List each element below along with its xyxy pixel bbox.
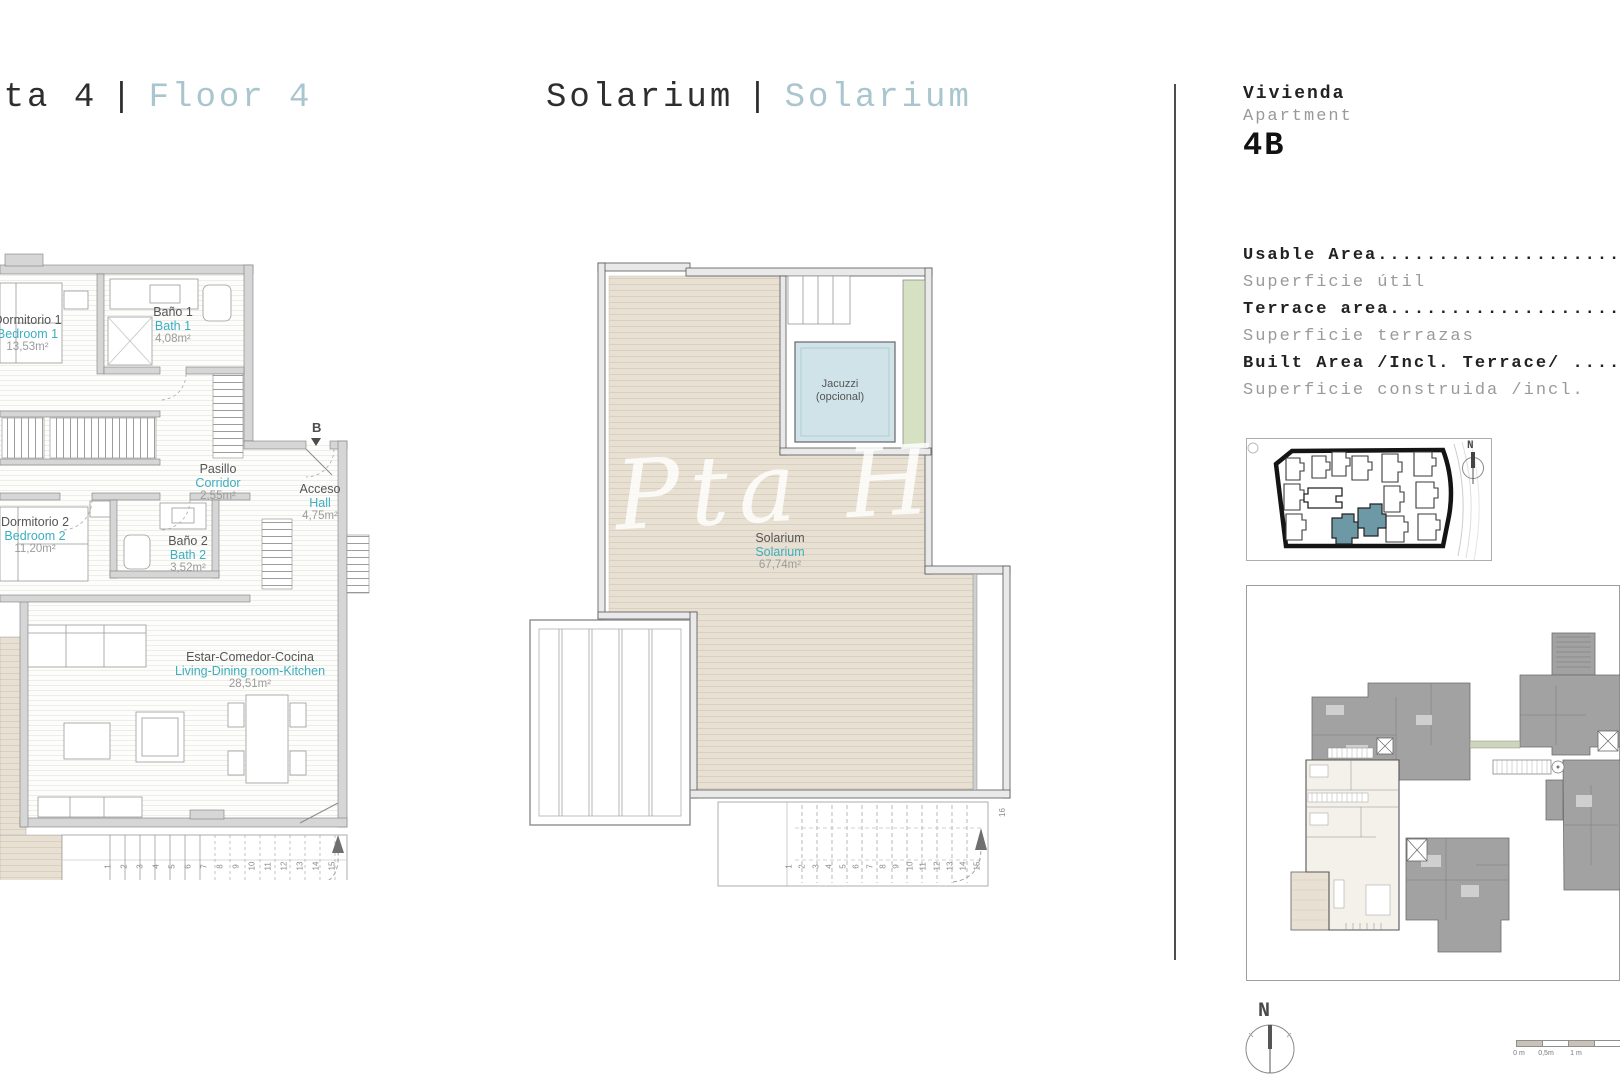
stair-step-number: 4 bbox=[152, 863, 161, 871]
room-label-bath1: Baño 1 Bath 1 4,08m² bbox=[118, 306, 228, 347]
usable-area-row: Usable Area............................ bbox=[1243, 246, 1620, 265]
apartment-label-en: Apartment bbox=[1243, 107, 1353, 126]
stair-step-number: 14 bbox=[959, 863, 968, 871]
terrace-area-row: Terrace area........................... bbox=[1243, 300, 1620, 319]
plan1-title: Planta 4|Floor 4 bbox=[0, 79, 312, 117]
room-name-es: Pasillo bbox=[163, 463, 273, 477]
room-label-living: Estar-Comedor-Cocina Living-Dining room-… bbox=[145, 651, 355, 692]
plan1-title-en: Floor 4 bbox=[149, 79, 313, 117]
plan1-stair-numbers: 123456789101112131415 bbox=[104, 862, 336, 871]
plan2-stair-numbers: 123456789101112131415 bbox=[785, 862, 981, 871]
room-name-en: Bath 1 bbox=[118, 320, 228, 334]
stair-step-number: 1 bbox=[104, 863, 113, 871]
section-marker-b: B bbox=[312, 420, 321, 435]
room-label-solarium: Solarium Solarium 67,74m² bbox=[730, 532, 830, 573]
stair-step-number: 11 bbox=[264, 863, 273, 871]
usable-area-row-es: Superficie útil bbox=[1243, 273, 1426, 292]
scale-label-0: 0 m bbox=[1513, 1050, 1525, 1057]
room-name-es: Dormitorio 2 bbox=[0, 516, 110, 530]
stair-step-number: 13 bbox=[946, 863, 955, 871]
room-name-en: Corridor bbox=[163, 477, 273, 491]
apartment-unit: 4B bbox=[1243, 127, 1285, 164]
scale-segment bbox=[1516, 1040, 1543, 1047]
stair-step-number: 7 bbox=[865, 863, 874, 871]
stair-step-number: 2 bbox=[120, 863, 129, 871]
room-label-hall: Acceso Hall 4,75m² bbox=[270, 483, 370, 524]
room-name-es: Solarium bbox=[730, 532, 830, 546]
jacuzzi-label: Jacuzzi (opcional) bbox=[790, 378, 890, 404]
stair-step-number: 5 bbox=[838, 863, 847, 871]
stair-step-number: 8 bbox=[878, 863, 887, 871]
stair-step-number: 1 bbox=[785, 863, 794, 871]
scale-bar: 0 m 0,5m 1 m bbox=[1516, 1040, 1620, 1062]
room-area: 4,08m² bbox=[118, 333, 228, 347]
stair-step-number: 4 bbox=[825, 863, 834, 871]
jacuzzi-label-line2: (opcional) bbox=[816, 391, 864, 403]
room-label-corridor: Pasillo Corridor 2,55m² bbox=[163, 463, 273, 504]
stair-step-number: 12 bbox=[932, 863, 941, 871]
room-area: 4,75m² bbox=[270, 510, 370, 524]
room-name-en: Living-Dining room-Kitchen bbox=[145, 665, 355, 679]
terrace-area-row-es: Superficie terrazas bbox=[1243, 327, 1475, 346]
stair-step-number: 3 bbox=[811, 863, 820, 871]
compass-north-label: N bbox=[1258, 1000, 1270, 1023]
room-name-en: Bedroom 2 bbox=[0, 530, 110, 544]
stair-step-number: 10 bbox=[248, 863, 257, 871]
scale-label-1: 1 m bbox=[1570, 1050, 1582, 1057]
section-marker-arrow-icon bbox=[311, 438, 321, 446]
plan1-title-es: Planta 4 bbox=[0, 79, 97, 117]
room-area: 3,52m² bbox=[138, 562, 238, 576]
plan2-title: Solarium|Solarium bbox=[546, 79, 972, 117]
built-area-row-es: Superficie construida /incl. bbox=[1243, 381, 1585, 400]
stair-step-number: 12 bbox=[280, 863, 289, 871]
plan2-title-separator: | bbox=[747, 79, 770, 117]
jacuzzi-label-line1: Jacuzzi bbox=[822, 378, 859, 390]
stair-step-number: 14 bbox=[312, 863, 321, 871]
scale-segment bbox=[1568, 1040, 1595, 1047]
room-name-es: Estar-Comedor-Cocina bbox=[145, 651, 355, 665]
room-name-es: Acceso bbox=[270, 483, 370, 497]
site-plan-minimap bbox=[1246, 438, 1492, 561]
plan2-title-es: Solarium bbox=[546, 79, 733, 117]
room-label-bedroom2: Dormitorio 2 Bedroom 2 11,20m² bbox=[0, 516, 110, 557]
room-label-bath2: Baño 2 Bath 2 3,52m² bbox=[138, 535, 238, 576]
plan2-title-en: Solarium bbox=[785, 79, 972, 117]
stair-step-number: 9 bbox=[892, 863, 901, 871]
room-name-en: Bath 2 bbox=[138, 549, 238, 563]
room-name-en: Solarium bbox=[730, 546, 830, 560]
scale-segment bbox=[1542, 1040, 1569, 1047]
stair-step-number: 3 bbox=[136, 863, 145, 871]
vertical-divider bbox=[1174, 84, 1176, 960]
plan1-title-separator: | bbox=[111, 79, 134, 117]
minimap-north-label: N bbox=[1467, 440, 1474, 452]
stair-step-number: 6 bbox=[852, 863, 861, 871]
stair-step-number: 5 bbox=[168, 863, 177, 871]
room-name-es: Baño 2 bbox=[138, 535, 238, 549]
room-area: 2,55m² bbox=[163, 490, 273, 504]
plan-sheet: Planta 4|Floor 4 Solarium|Solarium bbox=[0, 0, 1620, 1080]
built-area-row: Built Area /Incl. Terrace/ ............ bbox=[1243, 354, 1620, 373]
scale-segment bbox=[1594, 1040, 1620, 1047]
stair-step-number: 9 bbox=[232, 863, 241, 871]
stair-step-number: 15 bbox=[328, 863, 337, 871]
scale-label-05: 0,5m bbox=[1538, 1050, 1554, 1057]
compass-icon bbox=[1243, 1021, 1299, 1077]
room-name-en: Bedroom 1 bbox=[0, 328, 115, 342]
room-area: 67,74m² bbox=[730, 559, 830, 573]
room-label-bedroom1: Dormitorio 1 Bedroom 1 13,53m² bbox=[0, 314, 115, 355]
room-area: 13,53m² bbox=[0, 341, 115, 355]
apartment-label-es: Vivienda bbox=[1243, 84, 1345, 104]
stair-step-number: 10 bbox=[905, 863, 914, 871]
stair-step-number: 15 bbox=[972, 863, 981, 871]
stair-step-number: 13 bbox=[296, 863, 305, 871]
room-area: 28,51m² bbox=[145, 678, 355, 692]
stair-step-number: 2 bbox=[798, 863, 807, 871]
room-area: 11,20m² bbox=[0, 543, 110, 557]
floor-key-plan bbox=[1246, 585, 1620, 981]
plan2-stair-number-16: 16 bbox=[998, 808, 1007, 817]
room-name-es: Dormitorio 1 bbox=[0, 314, 115, 328]
stair-step-number: 8 bbox=[216, 863, 225, 871]
room-name-es: Baño 1 bbox=[118, 306, 228, 320]
stair-step-number: 11 bbox=[919, 863, 928, 871]
stair-step-number: 7 bbox=[200, 863, 209, 871]
stair-step-number: 6 bbox=[184, 863, 193, 871]
room-name-en: Hall bbox=[270, 497, 370, 511]
